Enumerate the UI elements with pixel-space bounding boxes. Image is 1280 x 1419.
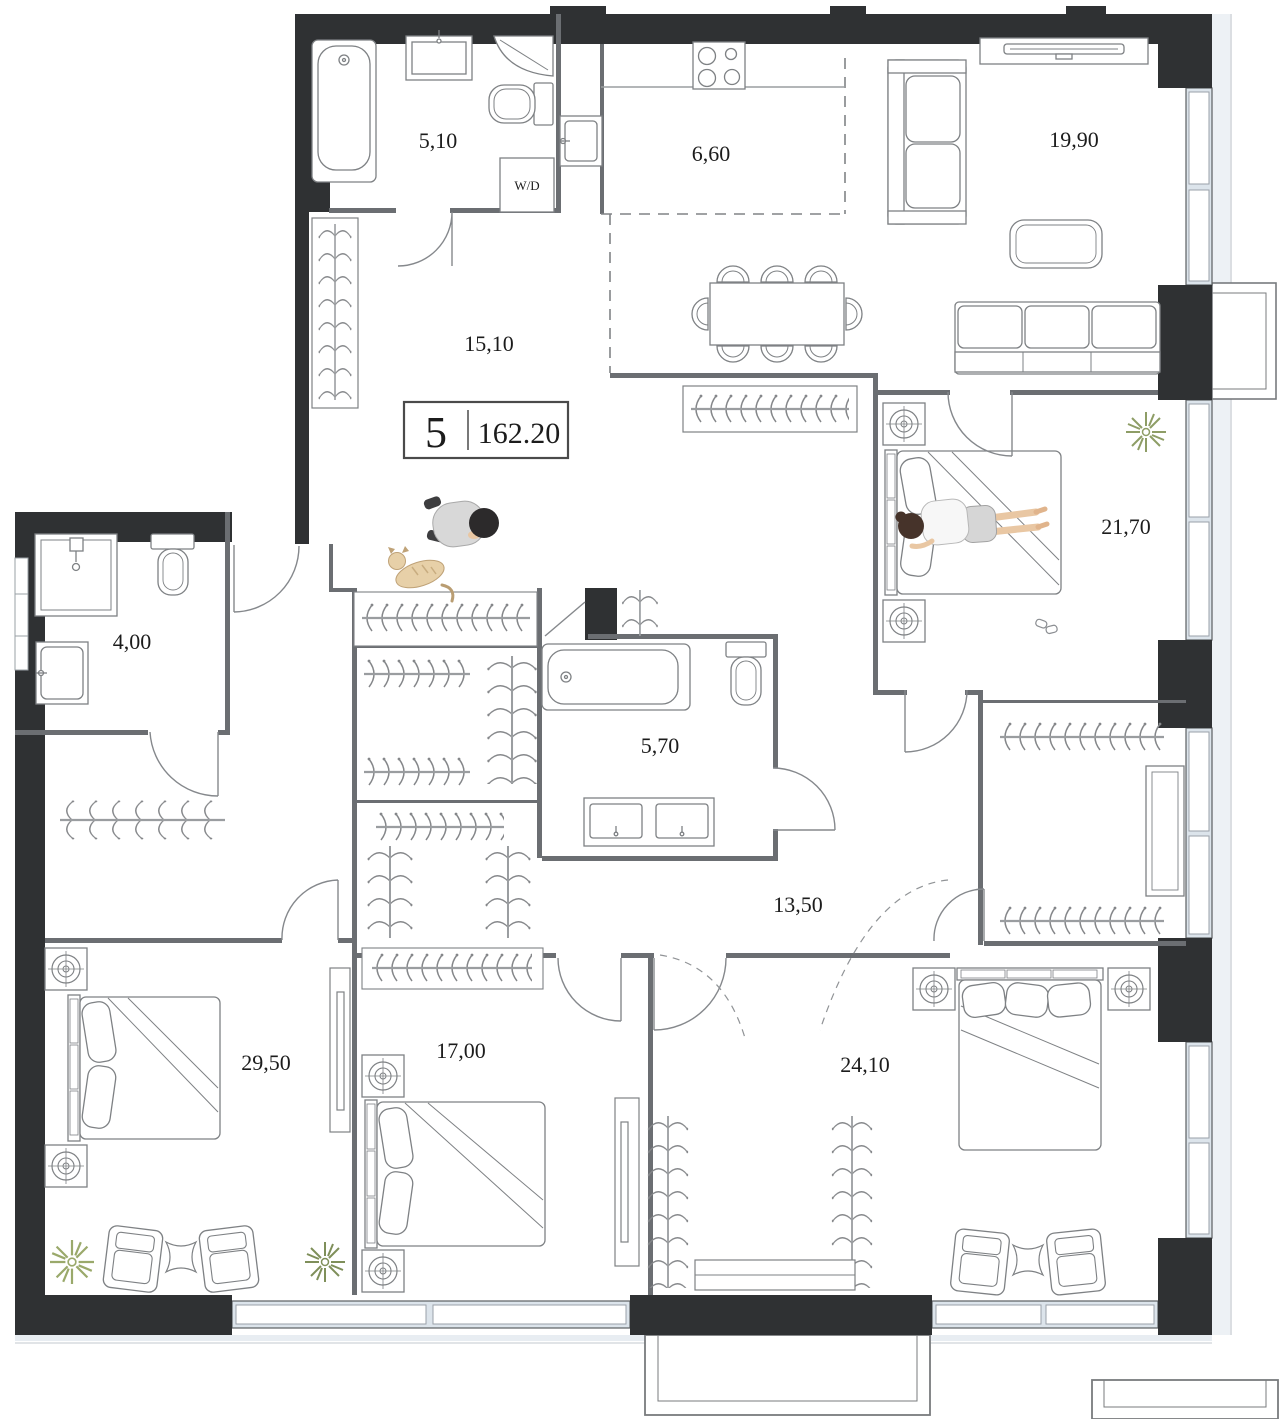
room-label-bathroom-main: 5,70 xyxy=(641,733,680,758)
nightstand xyxy=(45,1145,87,1187)
floor-plan-svg: W/D xyxy=(0,0,1280,1419)
room-label-bedroom-middle: 17,00 xyxy=(436,1038,486,1063)
armchair-set-left xyxy=(102,1225,259,1293)
room-label-bathroom-top: 5,10 xyxy=(419,128,458,153)
stove xyxy=(693,42,745,89)
washer-dryer-label: W/D xyxy=(514,178,539,193)
nightstand xyxy=(883,403,925,445)
closet-mid xyxy=(364,656,545,789)
room-label-living: 19,90 xyxy=(1049,127,1099,152)
dining-set xyxy=(692,266,862,362)
armchair-set-right xyxy=(950,1228,1106,1295)
closet-lower xyxy=(360,810,538,938)
nightstand xyxy=(913,968,955,1010)
slippers xyxy=(1035,618,1058,634)
sofa-living xyxy=(888,60,966,224)
floor-plan-canvas: W/D xyxy=(0,0,1280,1419)
bathtub-top xyxy=(312,40,376,182)
closet-master xyxy=(1000,720,1184,938)
bench-sofa-dining xyxy=(955,302,1160,374)
toilet-bathroom-top xyxy=(489,83,553,125)
dining-table xyxy=(710,283,844,345)
nightstand xyxy=(362,1055,404,1097)
closet-bedroom-right xyxy=(641,1116,879,1290)
balcony-bottom xyxy=(645,1335,930,1415)
nightstand xyxy=(362,1250,404,1292)
toilet-wc xyxy=(151,534,194,595)
plant xyxy=(50,1240,94,1284)
person-walking xyxy=(423,495,499,549)
sink-utility xyxy=(560,116,602,166)
wall-inset-left xyxy=(15,558,28,670)
room-label-hallway: 15,10 xyxy=(464,331,514,356)
room-label-corridor: 13,50 xyxy=(773,892,823,917)
shower xyxy=(35,534,117,616)
corner-cabinet xyxy=(494,36,553,76)
closet-bedroom-middle xyxy=(362,948,543,989)
plant xyxy=(305,1242,345,1282)
closet-dining-wall xyxy=(683,386,857,432)
coffee-table xyxy=(1010,220,1102,268)
closet-hall-top xyxy=(354,592,537,646)
bed-right xyxy=(957,968,1103,1150)
room-label-wc: 4,00 xyxy=(113,629,152,654)
closet-entry xyxy=(312,218,358,408)
nightstand xyxy=(45,948,87,990)
washer-dryer: W/D xyxy=(500,158,554,212)
nightstand xyxy=(883,600,925,642)
room-label-master: 21,70 xyxy=(1101,514,1151,539)
tv-unit-bedroom-left xyxy=(330,968,350,1132)
sink-wc xyxy=(36,642,88,704)
toilet-main xyxy=(726,642,766,705)
tv-unit-bedroom-middle xyxy=(615,1098,639,1266)
room-label-bedroom-left: 29,50 xyxy=(241,1050,291,1075)
bed-middle xyxy=(365,1100,545,1248)
room-label-kitchen: 6,60 xyxy=(692,141,731,166)
badge-room-count: 5 xyxy=(425,408,447,457)
balcony-right xyxy=(1212,283,1276,399)
room-label-bedroom-right: 24,10 xyxy=(840,1052,890,1077)
nightstand xyxy=(1108,968,1150,1010)
double-vanity xyxy=(584,798,714,846)
bathtub-main xyxy=(542,644,690,710)
tv-unit-living xyxy=(980,38,1148,64)
closet-above-bath xyxy=(616,590,664,636)
balcony-bottom-right xyxy=(1092,1380,1278,1419)
closet-hall-lower xyxy=(60,794,225,846)
plant xyxy=(1126,412,1166,452)
plan-badge: 5 162.20 xyxy=(404,402,568,458)
sink-bathroom-top xyxy=(406,30,472,80)
badge-total-area: 162.20 xyxy=(478,417,561,450)
bed-left xyxy=(68,995,220,1141)
